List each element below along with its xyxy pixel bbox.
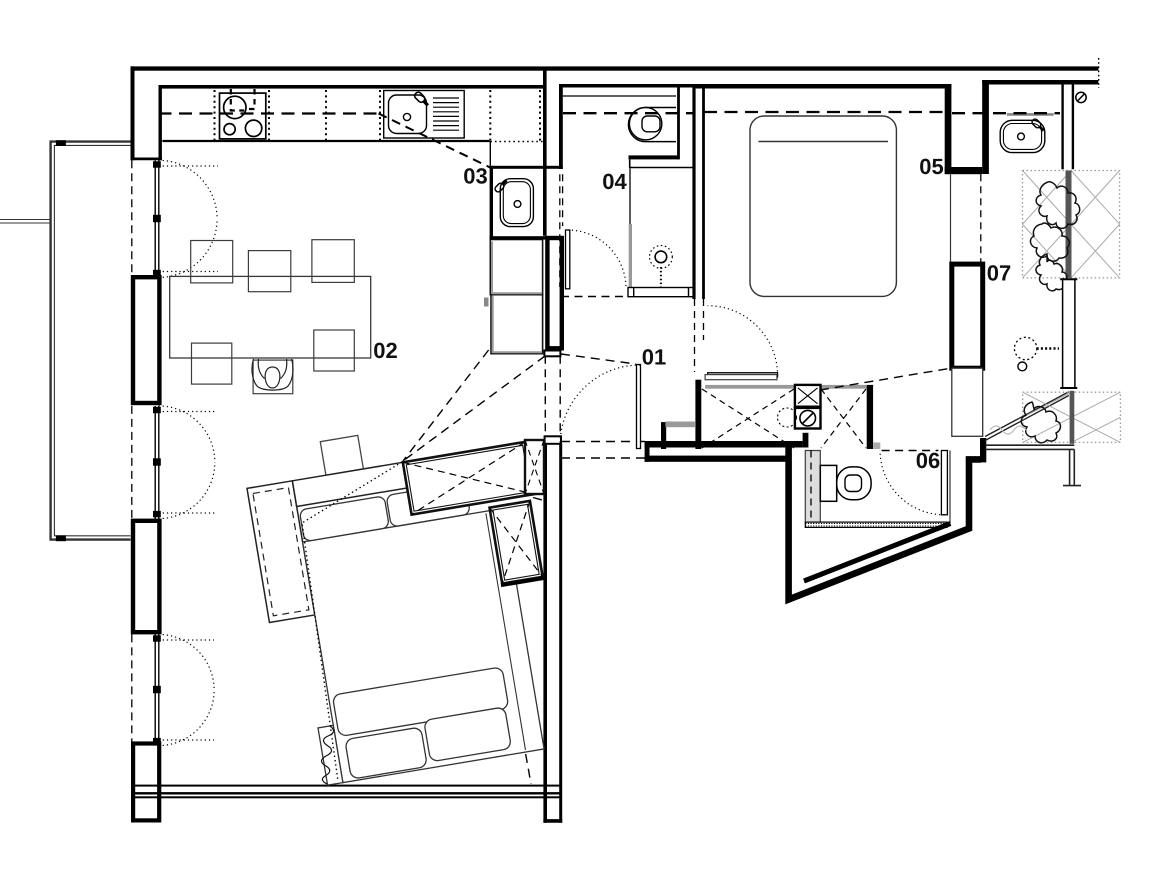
- svg-text:04: 04: [602, 169, 627, 194]
- svg-text:05: 05: [919, 154, 943, 179]
- svg-text:07: 07: [987, 261, 1011, 286]
- svg-text:02: 02: [373, 338, 397, 363]
- svg-text:03: 03: [463, 164, 487, 189]
- svg-text:01: 01: [642, 345, 666, 370]
- svg-text:06: 06: [916, 448, 940, 473]
